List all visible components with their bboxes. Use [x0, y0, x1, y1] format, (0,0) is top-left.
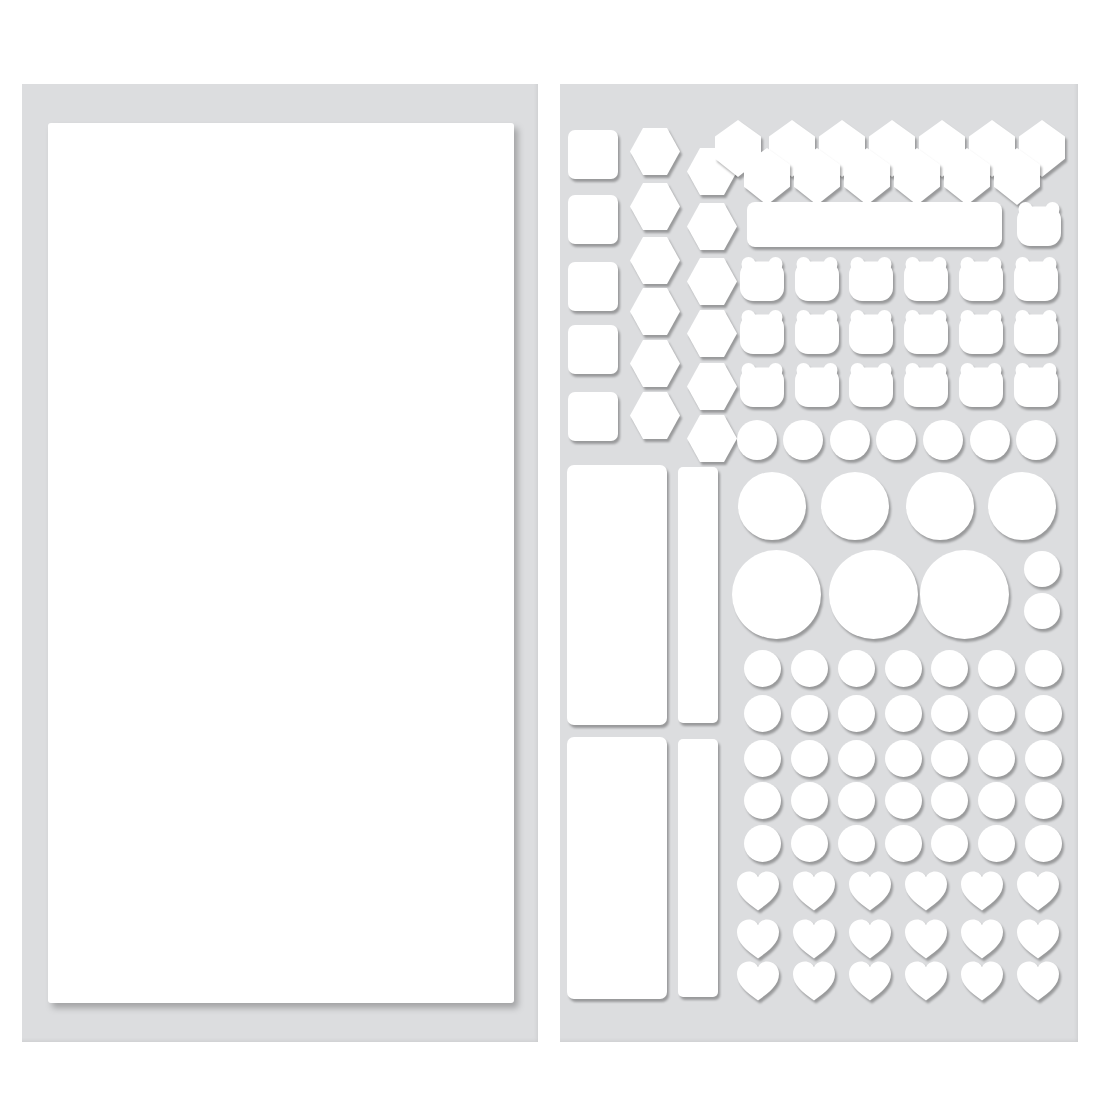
small-circle-sticker	[876, 420, 916, 460]
heart-sticker	[903, 918, 949, 960]
right-sticker-sheet	[560, 84, 1078, 1042]
square-sticker	[568, 195, 618, 244]
bear-sticker	[902, 308, 950, 355]
hexagon-sticker	[687, 310, 737, 357]
bear-sticker	[1015, 200, 1063, 247]
narrow-rect-sticker	[678, 467, 718, 723]
dot-circle-sticker	[1025, 825, 1062, 862]
dot-circle-sticker	[885, 782, 922, 819]
heart-sticker	[847, 918, 893, 960]
bear-sticker	[1012, 255, 1060, 302]
diamond-sticker	[994, 148, 1040, 205]
dot-circle-sticker	[885, 695, 922, 732]
heart-sticker	[735, 870, 781, 912]
small-circle-sticker	[830, 420, 870, 460]
tall-rect-sticker	[567, 737, 667, 999]
dot-circle-sticker	[978, 695, 1015, 732]
small-circle-sticker	[923, 420, 963, 460]
dot-circle-sticker	[744, 825, 781, 862]
square-sticker	[568, 392, 618, 441]
heart-sticker	[903, 870, 949, 912]
hexagon-sticker	[630, 237, 680, 284]
dot-circle-sticker	[931, 782, 968, 819]
dot-circle-sticker	[791, 650, 828, 687]
hexagon-sticker	[630, 183, 680, 230]
hexagon-sticker	[630, 128, 680, 175]
tiny-circle-sticker	[1024, 551, 1060, 587]
heart-sticker	[959, 870, 1005, 912]
hexagon-sticker	[630, 288, 680, 335]
large-circle-sticker	[732, 550, 821, 639]
dot-circle-sticker	[885, 650, 922, 687]
medium-circle-sticker	[821, 472, 889, 540]
heart-sticker	[903, 960, 949, 1002]
bear-sticker	[957, 308, 1005, 355]
dot-circle-sticker	[1025, 650, 1062, 687]
heart-sticker	[1015, 918, 1061, 960]
bear-sticker	[793, 308, 841, 355]
heart-sticker	[791, 918, 837, 960]
dot-circle-sticker	[931, 695, 968, 732]
small-circle-sticker	[737, 420, 777, 460]
hexagon-sticker	[630, 340, 680, 387]
tiny-circle-sticker	[1024, 593, 1060, 629]
dot-circle-sticker	[978, 740, 1015, 777]
bear-sticker	[738, 361, 786, 408]
dot-circle-sticker	[791, 825, 828, 862]
bear-sticker	[902, 255, 950, 302]
bear-sticker	[847, 361, 895, 408]
heart-sticker	[735, 960, 781, 1002]
label-bar-sticker	[747, 202, 1002, 247]
bear-sticker	[738, 308, 786, 355]
dot-circle-sticker	[931, 740, 968, 777]
heart-sticker	[847, 960, 893, 1002]
bear-sticker	[793, 255, 841, 302]
dot-circle-sticker	[744, 740, 781, 777]
bear-sticker	[902, 361, 950, 408]
dot-circle-sticker	[791, 782, 828, 819]
dot-circle-sticker	[931, 650, 968, 687]
heart-sticker	[791, 870, 837, 912]
bear-sticker	[1012, 308, 1060, 355]
diamond-sticker	[744, 148, 790, 205]
diamond-sticker	[794, 148, 840, 205]
dot-circle-sticker	[885, 825, 922, 862]
dot-circle-sticker	[791, 695, 828, 732]
dot-circle-sticker	[838, 740, 875, 777]
bear-sticker	[957, 255, 1005, 302]
bear-sticker	[793, 361, 841, 408]
narrow-rect-sticker	[678, 739, 718, 997]
dot-circle-sticker	[978, 825, 1015, 862]
bear-sticker	[847, 255, 895, 302]
square-sticker	[568, 325, 618, 374]
square-sticker	[568, 262, 618, 311]
hexagon-sticker	[630, 392, 680, 439]
heart-sticker	[1015, 960, 1061, 1002]
product-photo	[0, 0, 1100, 1100]
hexagon-sticker	[687, 203, 737, 250]
heart-sticker	[959, 918, 1005, 960]
dot-circle-sticker	[838, 695, 875, 732]
bear-sticker	[957, 361, 1005, 408]
heart-sticker	[791, 960, 837, 1002]
dot-circle-sticker	[744, 782, 781, 819]
small-circle-sticker	[783, 420, 823, 460]
dot-circle-sticker	[978, 782, 1015, 819]
large-circle-sticker	[829, 550, 918, 639]
dot-circle-sticker	[838, 825, 875, 862]
tall-rect-sticker	[567, 465, 667, 725]
diamond-sticker	[894, 148, 940, 205]
diamond-sticker	[944, 148, 990, 205]
dot-circle-sticker	[744, 695, 781, 732]
dot-circle-sticker	[978, 650, 1015, 687]
dot-circle-sticker	[791, 740, 828, 777]
medium-circle-sticker	[738, 472, 806, 540]
small-circle-sticker	[970, 420, 1010, 460]
left-sticker-sheet	[22, 84, 538, 1042]
dot-circle-sticker	[838, 650, 875, 687]
square-sticker	[568, 130, 618, 179]
bear-sticker	[847, 308, 895, 355]
bear-sticker	[738, 255, 786, 302]
hexagon-sticker	[687, 415, 737, 462]
blank-sticker	[48, 123, 514, 1003]
diamond-sticker	[844, 148, 890, 205]
dot-circle-sticker	[1025, 740, 1062, 777]
dot-circle-sticker	[1025, 782, 1062, 819]
hexagon-sticker	[687, 363, 737, 410]
dot-circle-sticker	[1025, 695, 1062, 732]
medium-circle-sticker	[988, 472, 1056, 540]
small-circle-sticker	[1016, 420, 1056, 460]
heart-sticker	[1015, 870, 1061, 912]
dot-circle-sticker	[931, 825, 968, 862]
heart-sticker	[847, 870, 893, 912]
dot-circle-sticker	[744, 650, 781, 687]
dot-circle-sticker	[885, 740, 922, 777]
heart-sticker	[735, 918, 781, 960]
hexagon-sticker	[687, 258, 737, 305]
large-circle-sticker	[920, 550, 1009, 639]
dot-circle-sticker	[838, 782, 875, 819]
heart-sticker	[959, 960, 1005, 1002]
medium-circle-sticker	[906, 472, 974, 540]
bear-sticker	[1012, 361, 1060, 408]
